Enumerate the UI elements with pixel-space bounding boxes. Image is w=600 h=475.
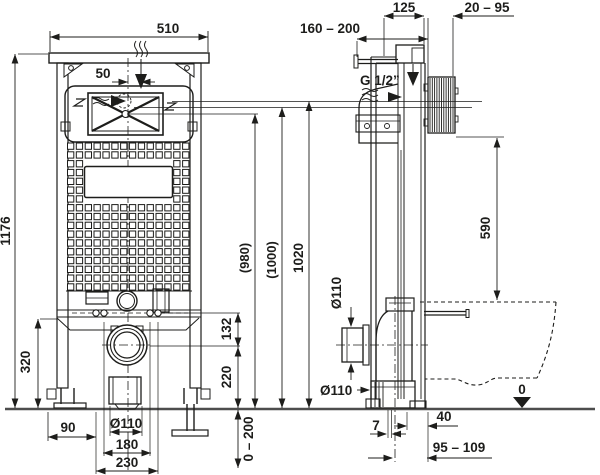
label-floor-datum: 0 bbox=[518, 382, 526, 397]
dim-frame-height: 1176 bbox=[0, 216, 13, 246]
technical-drawing-svg: 510 50 1176 (980) (1000) 1020 132 220 0 … bbox=[0, 0, 600, 475]
level-mark-left bbox=[74, 99, 85, 106]
floor-datum-marker bbox=[513, 397, 531, 408]
dim-front-width: 510 bbox=[157, 21, 180, 36]
height-leader-lines bbox=[127, 102, 482, 115]
drain-outlet-box bbox=[109, 377, 141, 409]
dim-outlet-edge-offset: 7 bbox=[372, 418, 380, 433]
label-water-supply: G 1/2” bbox=[360, 73, 400, 88]
dim-height-980: (980) bbox=[237, 243, 252, 273]
corner-brace-left bbox=[64, 64, 82, 77]
dim-lower-zone: 320 bbox=[18, 351, 33, 374]
dim-height-1020: 1020 bbox=[291, 243, 306, 273]
flush-shaft-arrow bbox=[407, 72, 419, 86]
dim-cistern-bottom-height: 590 bbox=[478, 217, 493, 240]
level-mark-right bbox=[165, 103, 176, 110]
flush-plate-hatch bbox=[430, 78, 453, 132]
bowl-mounting-rod bbox=[424, 310, 469, 318]
installation-drawing: 510 50 1176 (980) (1000) 1020 132 220 0 … bbox=[0, 0, 600, 475]
dim-drain-to-floor: 220 bbox=[219, 366, 234, 389]
dim-foot-offset: 90 bbox=[60, 420, 75, 435]
dim-wall-rod-range: 160 – 200 bbox=[300, 21, 360, 36]
dim-frame-depth: 125 bbox=[393, 0, 416, 15]
water-supply-arrow bbox=[388, 92, 402, 102]
corner-brace-right bbox=[176, 64, 194, 77]
dim-plate-depth-range: 20 – 95 bbox=[464, 0, 510, 15]
dim-outlet-diameter: Ø110 bbox=[320, 383, 352, 398]
front-view-lower bbox=[57, 289, 201, 409]
right-foot-extended bbox=[172, 388, 210, 436]
dim-outlet-wall-distance: 95 – 109 bbox=[433, 440, 486, 455]
dim-front-drain-diameter: Ø110 bbox=[110, 416, 142, 431]
dim-stud-to-drain: 132 bbox=[219, 318, 234, 341]
dim-stud-spacing: 180 bbox=[116, 437, 139, 452]
front-view-cistern bbox=[65, 41, 193, 470]
grid-access-cutout bbox=[85, 167, 173, 198]
left-foot bbox=[47, 388, 86, 408]
dim-connector-diameter: Ø110 bbox=[329, 277, 344, 309]
water-supply-top bbox=[135, 41, 148, 74]
dim-leg-adjust: 0 – 200 bbox=[241, 416, 256, 461]
dim-outlet-front-depth: 40 bbox=[436, 409, 451, 424]
dim-outer-stud-spacing: 230 bbox=[116, 455, 139, 470]
dim-inlet-offset: 50 bbox=[95, 66, 110, 81]
dim-height-1000: (1000) bbox=[264, 241, 279, 279]
side-view-cistern bbox=[356, 84, 400, 143]
